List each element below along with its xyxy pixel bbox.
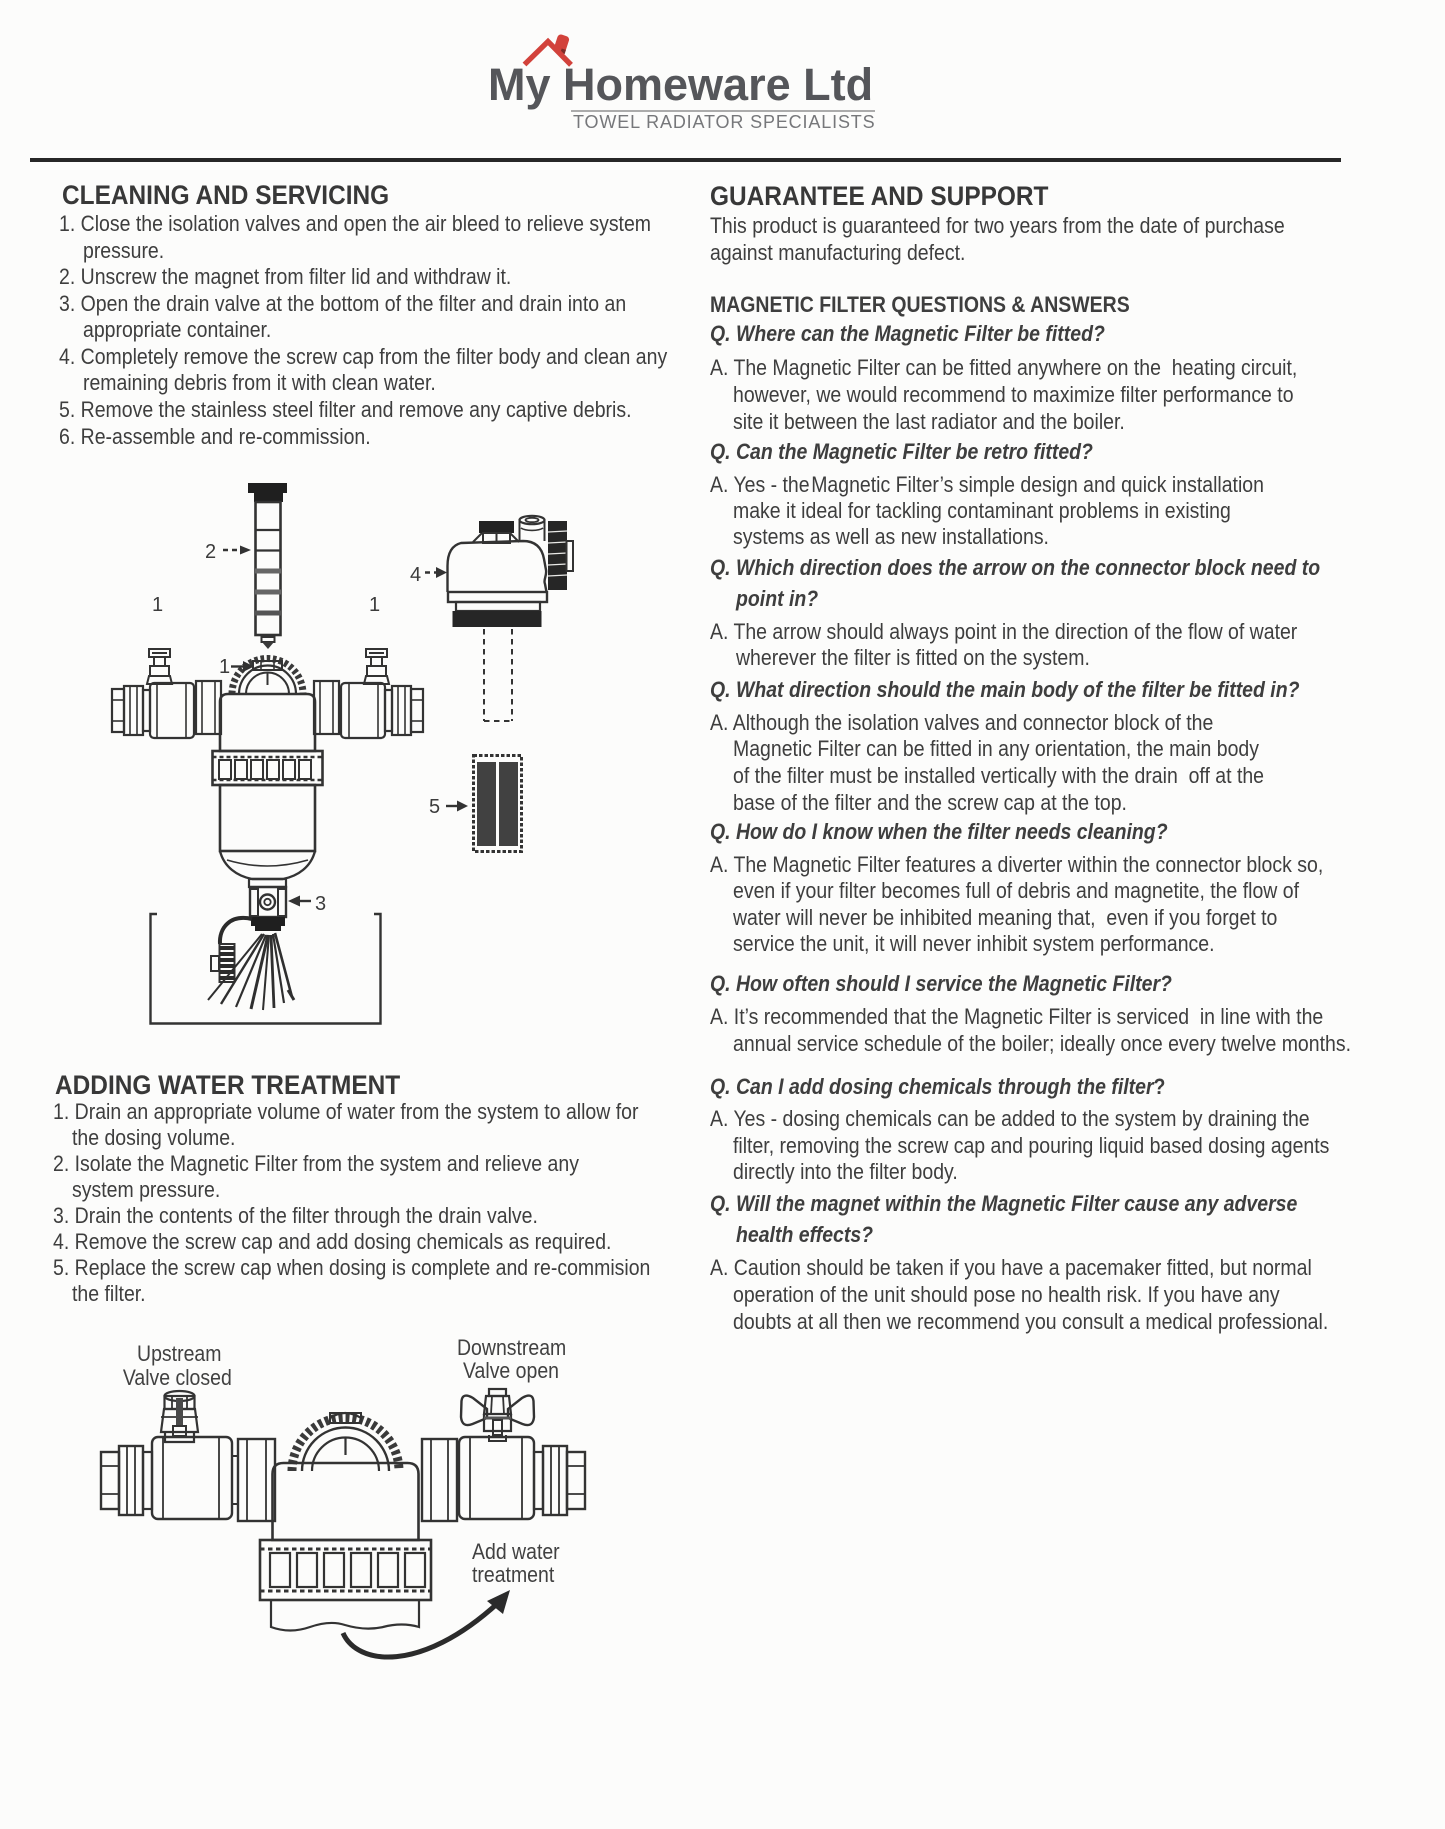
svg-text:3: 3 bbox=[315, 893, 326, 915]
svg-text:1: 1 bbox=[369, 594, 380, 616]
svg-text:1: 1 bbox=[152, 594, 163, 616]
svg-text:5: 5 bbox=[429, 796, 440, 818]
svg-text:1: 1 bbox=[219, 656, 230, 678]
svg-text:4: 4 bbox=[410, 564, 421, 586]
svg-text:2: 2 bbox=[205, 541, 216, 563]
